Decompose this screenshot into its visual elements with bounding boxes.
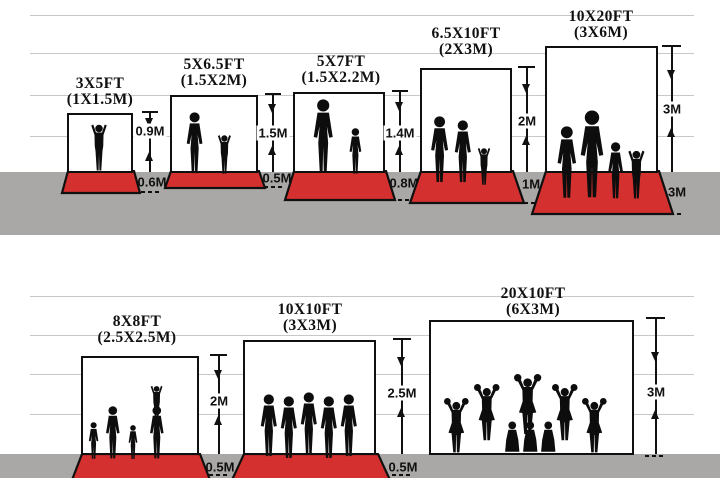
- size-m: (3X6M): [511, 25, 691, 41]
- people-silhouette: [78, 120, 122, 172]
- wall-height-label: 0.9M: [134, 124, 167, 139]
- arrow-up-icon: [651, 410, 659, 419]
- size-ft: 8X8FT: [47, 314, 227, 330]
- dimension-tick-dashed: [141, 191, 159, 193]
- people-silhouette: [176, 110, 254, 175]
- dimension-tick-dashed: [392, 474, 412, 476]
- people-silhouette: [552, 110, 652, 200]
- people-silhouette: [86, 384, 198, 460]
- arrow-down-icon: [651, 352, 659, 361]
- arrow-down-icon: [522, 84, 530, 93]
- wall-height-label: 2M: [208, 394, 230, 409]
- panel-title: 20X10FT (6X3M): [443, 286, 623, 319]
- wall-height-label: 2M: [516, 114, 538, 129]
- red-carpet: [59, 170, 141, 195]
- panel-title: 5X7FT (1.5X2.2M): [251, 54, 431, 87]
- size-comparison-diagram: 3X5FT (1X1.5M) 0.9M 0.6M 5X6.5FT (1.5X2M…: [0, 0, 720, 478]
- wall-height-label: 1.5M: [257, 126, 290, 141]
- arrow-up-icon: [214, 416, 222, 425]
- size-ft: 10X20FT: [511, 9, 691, 25]
- arrow-up-icon: [268, 146, 276, 155]
- arrow-up-icon: [667, 128, 675, 137]
- arrow-down-icon: [214, 370, 222, 379]
- size-ft: 10X10FT: [220, 302, 400, 318]
- dimension-tick-dashed: [663, 213, 683, 215]
- arrow-down-icon: [667, 70, 675, 79]
- people-silhouette: [300, 98, 382, 177]
- panel-title: 8X8FT (2.5X2.5M): [47, 314, 227, 347]
- wall-height-label: 1.4M: [384, 126, 417, 141]
- size-m: (2.5X2.5M): [47, 330, 227, 346]
- size-m: (3X3M): [220, 318, 400, 334]
- panel-title: 10X10FT (3X3M): [220, 302, 400, 335]
- size-m: (1X1.5M): [10, 92, 190, 108]
- floor-depth-label: 0.5M: [387, 460, 420, 475]
- arrow-up-icon: [397, 408, 405, 417]
- wall-height-label: 3M: [645, 385, 667, 400]
- arrow-down-icon: [268, 104, 276, 113]
- dimension-tick-dashed: [209, 474, 229, 476]
- size-m: (6X3M): [443, 302, 623, 318]
- dimension-tick-dashed: [645, 455, 666, 457]
- size-ft: 20X10FT: [443, 286, 623, 302]
- people-silhouette: [256, 392, 378, 458]
- size-m: (2X3M): [376, 42, 556, 58]
- size-m: (1.5X2.2M): [251, 70, 431, 86]
- arrow-down-icon: [395, 102, 403, 111]
- arrow-up-icon: [522, 136, 530, 145]
- dimension-tick-dashed: [264, 186, 282, 188]
- arrow-up-icon: [145, 152, 153, 161]
- arrow-up-icon: [395, 146, 403, 155]
- people-silhouette: [426, 114, 510, 186]
- wall-height-label: 3M: [661, 102, 683, 117]
- people-silhouette: [444, 374, 620, 454]
- arrow-down-icon: [397, 357, 405, 366]
- floor-depth-label: 3M: [666, 185, 688, 200]
- wall-height-label: 2.5M: [386, 386, 419, 401]
- panel-title: 10X20FT (3X6M): [511, 9, 691, 42]
